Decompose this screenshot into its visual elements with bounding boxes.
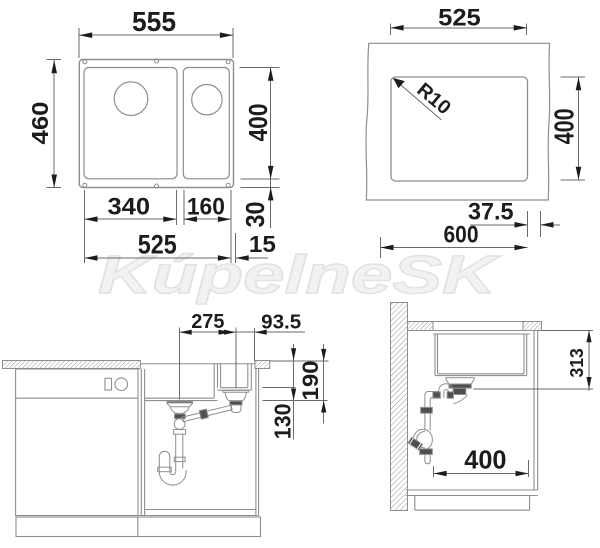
svg-text:160: 160 xyxy=(187,194,225,221)
svg-text:525: 525 xyxy=(438,5,481,32)
svg-text:555: 555 xyxy=(132,6,176,37)
svg-text:400: 400 xyxy=(243,104,273,142)
svg-text:93.5: 93.5 xyxy=(261,311,301,333)
svg-text:130: 130 xyxy=(270,404,296,440)
svg-text:525: 525 xyxy=(138,230,177,260)
svg-text:275: 275 xyxy=(191,311,224,333)
svg-text:400: 400 xyxy=(464,445,506,475)
svg-text:313: 313 xyxy=(567,348,587,377)
svg-text:190: 190 xyxy=(298,361,323,401)
svg-text:15: 15 xyxy=(249,231,276,257)
svg-text:340: 340 xyxy=(108,194,151,221)
svg-text:460: 460 xyxy=(27,102,53,145)
svg-text:30: 30 xyxy=(240,202,270,228)
svg-text:600: 600 xyxy=(444,222,479,249)
svg-text:400: 400 xyxy=(549,108,580,144)
